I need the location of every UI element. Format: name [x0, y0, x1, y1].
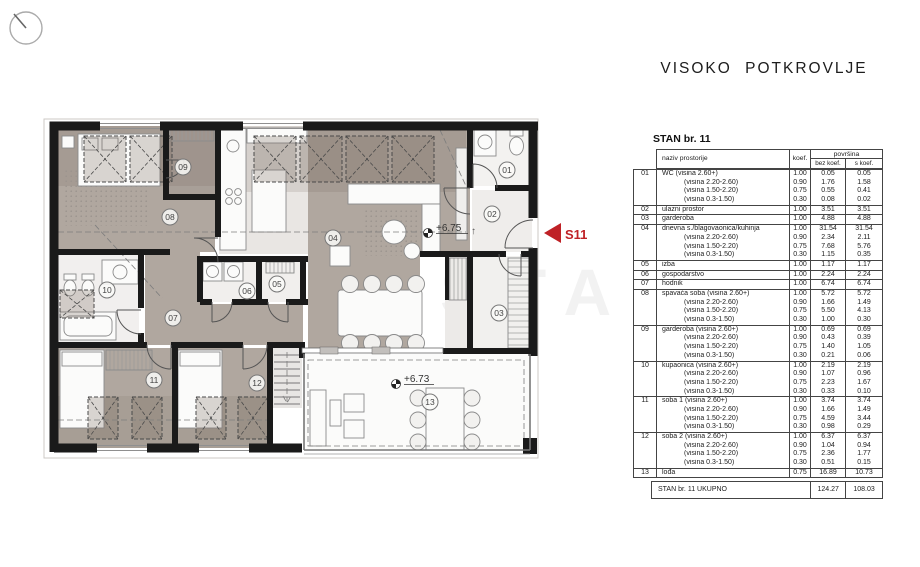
svg-text:13: 13 [425, 397, 435, 407]
svg-text:03: 03 [494, 308, 504, 318]
table-row: 06gospodarstvo1.002.242.24 [634, 270, 882, 280]
unit-marker: S11 [544, 223, 587, 243]
room-number-07: 07 [165, 310, 181, 326]
svg-text:12: 12 [252, 378, 262, 388]
svg-text:+6.73: +6.73 [404, 374, 430, 385]
table-row: 08spavaća soba (visina 2.60+)1.005.725.7… [634, 289, 882, 325]
room-number-11: 11 [146, 372, 162, 388]
svg-text:07: 07 [168, 313, 178, 323]
svg-text:02: 02 [487, 209, 497, 219]
svg-text:06: 06 [242, 286, 252, 296]
table-row: 12soba 2 (visina 2.60+)1.006.376.37(visi… [634, 432, 882, 468]
north-indicator-icon [10, 12, 42, 44]
room-number-08: 08 [162, 209, 178, 225]
table-row: 09garderoba (visina 2.60+)1.000.690.69(v… [634, 325, 882, 361]
floor-plan-sheet: STA [0, 0, 920, 567]
unit-marker-label: S11 [565, 227, 587, 242]
col-header-koef: koef. [790, 150, 811, 168]
col-header-bez-koef: bez koef. [811, 159, 846, 168]
col-header-s-koef: s koef. [846, 159, 882, 168]
col-header-area: površina [811, 150, 882, 159]
col-header-name: naziv prostorije [657, 150, 790, 168]
svg-text:01: 01 [502, 165, 512, 175]
table-rows: 01WC (visina 2.60+)1.000.050.05(visina 2… [633, 169, 883, 478]
unit-arrow-icon [544, 223, 561, 243]
entry-direction-arrow: ↑ [471, 226, 476, 237]
room-number-10: 10 [99, 282, 115, 298]
room-number-12: 12 [249, 375, 265, 391]
room-number-13: 13 [422, 394, 438, 410]
table-row: 10kupaonica (visina 2.60+)1.002.192.19(v… [634, 361, 882, 397]
table-header: naziv prostorije koef. površina bez koef… [656, 149, 883, 169]
table-row: 03garderoba1.004.884.88 [634, 214, 882, 224]
svg-text:09: 09 [178, 162, 188, 172]
table-row: 02ulazni prostor1.003.513.51 [634, 205, 882, 215]
table-row: 07hodnik1.006.746.74 [634, 279, 882, 289]
svg-text:04: 04 [328, 233, 338, 243]
table-total-row: STAN br. 11 UKUPNO 124.27 108.03 [651, 481, 883, 499]
room-number-09: 09 [175, 159, 191, 175]
total-bez-koef: 124.27 [811, 482, 846, 498]
svg-text:10: 10 [102, 285, 112, 295]
table-row: 11soba 1 (visina 2.60+)1.003.743.74(visi… [634, 396, 882, 432]
svg-text:11: 11 [150, 375, 159, 385]
sheet-title: VISOKO POTKROVLJE [640, 60, 888, 78]
room-number-01: 01 [499, 162, 515, 178]
total-label: STAN br. 11 UKUPNO [652, 482, 811, 498]
area-table: STAN br. 11 naziv prostorije koef. površ… [633, 133, 883, 499]
room-number-02: 02 [484, 206, 500, 222]
table-heading: STAN br. 11 [653, 133, 883, 146]
svg-text:08: 08 [165, 212, 175, 222]
total-s-koef: 108.03 [846, 482, 882, 498]
svg-text:+6.75: +6.75 [436, 223, 462, 234]
room-number-03: 03 [491, 305, 507, 321]
room-number-05: 05 [269, 276, 285, 292]
room-number-06: 06 [239, 283, 255, 299]
table-row: 13lođa0.7516.8910.73 [634, 468, 882, 478]
table-row: 01WC (visina 2.60+)1.000.050.05(visina 2… [634, 169, 882, 205]
table-row: 04dnevna s./blagovaonica/kuhinja1.0031.5… [634, 224, 882, 260]
table-row: 05izba1.001.171.17 [634, 260, 882, 270]
svg-text:05: 05 [272, 279, 282, 289]
room-number-04: 04 [325, 230, 341, 246]
